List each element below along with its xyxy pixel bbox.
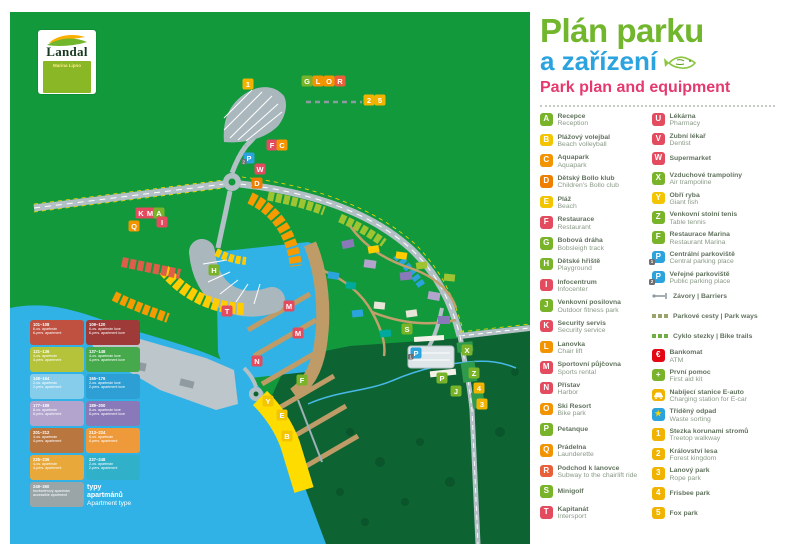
legend-badge-Q: Q xyxy=(540,444,553,457)
legend-item-text: PlážBeach xyxy=(558,196,577,211)
legend-label-en: Aquapark xyxy=(558,162,589,169)
map-marker-f: F xyxy=(297,375,308,386)
legend-item-text: Ski ResortBike park xyxy=(558,403,592,418)
legend-label-en: ATM xyxy=(670,357,703,364)
legend-item-u: ULékárnaPharmacy xyxy=(652,113,777,133)
legend-item-d: DDětský Bollo klubChildren's Bollo club xyxy=(540,175,652,196)
apartment-type-block: 249–260bezbariérový apartmánaccessible a… xyxy=(30,482,84,507)
map-marker-z: Z xyxy=(469,368,480,379)
legend-badge-T: T xyxy=(540,506,553,519)
legend-label-en: Pharmacy xyxy=(670,120,701,127)
legend-badge-C: C xyxy=(540,154,553,167)
map-marker-f: F xyxy=(267,140,278,151)
svg-text:I: I xyxy=(161,218,163,227)
legend-label-en: Restaurant Marina xyxy=(670,239,730,246)
legend-item-s: SMinigolf xyxy=(540,485,652,506)
legend-label-en: Rope park xyxy=(670,475,710,482)
legend-item-text: Dětský Bollo klubChildren's Bollo club xyxy=(558,175,619,190)
legend-label-cz: Závory | Barriers xyxy=(673,293,727,300)
parking-number-badge: 1 xyxy=(649,259,655,265)
svg-text:Y: Y xyxy=(265,397,270,406)
legend-item-star-icon: ★Tříděný odpadWaste sorting xyxy=(652,408,777,428)
legend-column-left: ARecepceReceptionBPlážový volejbalBeach … xyxy=(540,113,652,527)
map-marker-o: O xyxy=(324,76,335,87)
legend-item-text: LékárnaPharmacy xyxy=(670,113,701,128)
svg-text:P: P xyxy=(246,154,251,163)
map-marker-5: 5 xyxy=(375,95,386,106)
legend-label-cz: Nabíjecí stanice E-auto xyxy=(670,389,747,396)
legend-item-c: CAquaparkAquapark xyxy=(540,154,652,175)
legend-item-text: Petanque xyxy=(558,423,589,433)
map-marker-y: Y xyxy=(263,396,274,407)
legend-label-en: Bike park xyxy=(558,410,592,417)
legend-item-5: 5Fox park xyxy=(652,507,777,527)
svg-text:K: K xyxy=(138,209,144,218)
legend-label-cz: Restaurace xyxy=(558,216,595,223)
title-line2: a zařízení xyxy=(540,48,657,75)
title-line1: Plán parku xyxy=(540,14,777,48)
legend-item-q: QPrádelnaLaunderette xyxy=(540,444,652,465)
svg-text:B: B xyxy=(284,432,290,441)
legend-badge-G: G xyxy=(540,237,553,250)
legend-label-en: Infocenter xyxy=(558,286,597,293)
legend-label-en: Public parking place xyxy=(670,278,731,285)
legend-label-cz: Lanovka xyxy=(558,341,586,348)
legend-label-en: Beach volleyball xyxy=(558,141,611,148)
apartment-type-block: 237–2482-os. apartmán2-pers. apartment xyxy=(86,455,140,480)
legend-label-en: Waste sorting xyxy=(670,416,717,423)
legend-item-text: Bobová dráhaBobsleigh track xyxy=(558,237,604,252)
map-marker-n: N xyxy=(252,356,263,367)
apartment-type-block: 213–2246-os. apartmán6-pers. apartment xyxy=(86,428,140,453)
legend-label-en: Central parking place xyxy=(670,258,735,265)
legend-label-en: Reception xyxy=(558,120,589,127)
map-marker-p: P xyxy=(437,373,448,384)
svg-text:D: D xyxy=(254,179,260,188)
svg-text:5: 5 xyxy=(378,96,382,105)
legend-item-y: YObří rybaGiant fish xyxy=(652,192,777,212)
legend-item-plus-icon: +První pomocFirst aid kit xyxy=(652,369,777,389)
legend-item-text: Obří rybaGiant fish xyxy=(670,192,700,207)
legend-item-e: EPlážBeach xyxy=(540,196,652,217)
legend-item-text: InfocentrumInfocenter xyxy=(558,279,597,294)
legend-item-text: Zubní lékařDentist xyxy=(670,133,706,148)
legend-item-text: Podchod k lanovceSubway to the chairlift… xyxy=(558,465,638,480)
legend-item-text: Centrální parkovištěCentral parking plac… xyxy=(670,251,735,266)
svg-text:C: C xyxy=(279,141,285,150)
legend-badge-H: H xyxy=(540,258,553,271)
svg-text:L: L xyxy=(316,77,321,86)
legend-item-text: Veřejné parkovištěPublic parking place xyxy=(670,271,731,286)
park-plan-poster: 1GLOR25FCP2WDKMAIQHTMMNFYEBSP1PXZJ43 Lan… xyxy=(0,0,785,554)
svg-text:R: R xyxy=(337,77,343,86)
barrier-icon xyxy=(652,290,668,303)
map-marker-s: S xyxy=(402,324,413,335)
legend-badge-P: P2 xyxy=(652,271,665,284)
apartment-type-block: 137–1484-os. apartmán luxe4-pers. apartm… xyxy=(86,347,140,372)
apartment-type-block: 225–2364-os. apartmán4-pers. apartment xyxy=(30,455,84,480)
legend-item-text: Plážový volejbalBeach volleyball xyxy=(558,134,611,149)
legend-item-text: První pomocFirst aid kit xyxy=(670,369,711,384)
park-map: 1GLOR25FCP2WDKMAIQHTMMNFYEBSP1PXZJ43 Lan… xyxy=(10,12,530,544)
star-icon: ★ xyxy=(652,408,665,421)
legend-item-f: FRestauraceRestaurant xyxy=(540,216,652,237)
legend-label-en: Restaurant xyxy=(558,224,595,231)
map-marker-2: 2 xyxy=(364,95,375,106)
map-marker-r: R xyxy=(335,76,346,87)
legend-label-cz: Lékárna xyxy=(670,113,701,120)
legend-item-text: Venkovní posilovnaOutdoor fitness park xyxy=(558,299,621,314)
legend-item-text: Restaurace MarinaRestaurant Marina xyxy=(670,231,730,246)
legend-column-right: ULékárnaPharmacyVZubní lékařDentistWSupe… xyxy=(652,113,777,527)
svg-text:P: P xyxy=(439,374,444,383)
map-marker-l: L xyxy=(313,76,324,87)
legend-label-cz: Vzduchové trampolíny xyxy=(670,172,743,179)
legend-badge-D: D xyxy=(540,175,553,188)
svg-text:2: 2 xyxy=(367,96,371,105)
legend-label-cz: Supermarket xyxy=(670,155,712,162)
legend-item-g: GBobová dráhaBobsleigh track xyxy=(540,237,652,258)
map-marker-3: 3 xyxy=(477,399,488,410)
legend-panel: Plán parku a zařízení Park plan and equi… xyxy=(530,0,785,554)
apartment-type-block: 149–1642-os. apartmán2-pers. apartment xyxy=(30,374,84,399)
legend-item-ecar-icon: Nabíjecí stanice E-autoCharging station … xyxy=(652,389,777,409)
apartment-type-block: 177–1888-os. apartmán8-pers. apartment xyxy=(30,401,84,426)
legend-label-cz: Lanový park xyxy=(670,467,710,474)
legend-label-en: Security service xyxy=(558,327,606,334)
legend-item-text: Fox park xyxy=(670,507,698,517)
legend-badge-F: F xyxy=(540,216,553,229)
map-marker-d: D xyxy=(252,178,263,189)
svg-text:A: A xyxy=(156,209,162,218)
svg-text:E: E xyxy=(279,411,284,420)
svg-text:M: M xyxy=(286,302,292,311)
legend-badge-A: A xyxy=(540,113,553,126)
title-line3: Park plan and equipment xyxy=(540,78,777,98)
apartment-type-legend: 101–1086-os. apartmán6-pers. apartment10… xyxy=(30,320,142,507)
legend-label-cz: Recepce xyxy=(558,113,589,120)
legend-item-l: LLanovkaChair lift xyxy=(540,341,652,362)
map-marker-j: J xyxy=(451,386,462,397)
legend-item-text: RestauraceRestaurant xyxy=(558,216,595,231)
legend-label-cz: Fox park xyxy=(670,510,698,517)
legend-label-en: Air trampoline xyxy=(670,179,743,186)
svg-text:Z: Z xyxy=(472,369,477,378)
legend-badge-3: 3 xyxy=(652,467,665,480)
svg-text:O: O xyxy=(326,77,332,86)
legend-label-en: Sports rental xyxy=(558,369,621,376)
svg-text:F: F xyxy=(270,141,275,150)
legend-label-en: Giant fish xyxy=(670,199,700,206)
euro-icon: € xyxy=(652,349,665,362)
legend-badge-P: P1 xyxy=(652,251,665,264)
legend-label-cz: Obří ryba xyxy=(670,192,700,199)
legend-item-parkway-icon: Parkové cesty | Park ways xyxy=(652,310,777,330)
legend-label-en: Charging station for E-car xyxy=(670,396,747,403)
legend-badge-S: S xyxy=(540,485,553,498)
legend-item-w: WSupermarket xyxy=(652,152,777,172)
legend-item-z: ZVenkovní stolní tenisTable tennis xyxy=(652,211,777,231)
map-marker-c: C xyxy=(277,140,288,151)
legend-item-text: LanovkaChair lift xyxy=(558,341,586,356)
legend-item-text: Frisbee park xyxy=(670,487,710,497)
plus-icon: + xyxy=(652,369,665,382)
legend-label-cz: První pomoc xyxy=(670,369,711,376)
legend-badge-J: J xyxy=(540,299,553,312)
legend-label-cz: Restaurace Marina xyxy=(670,231,730,238)
legend-label-cz: Bankomat xyxy=(670,349,703,356)
legend-item-text: PřístavHarbor xyxy=(558,382,581,397)
legend-item-n: NPřístavHarbor xyxy=(540,382,652,403)
legend-label-en: Beach xyxy=(558,203,577,210)
legend-item-a: ARecepceReception xyxy=(540,113,652,134)
legend-item-r: RPodchod k lanovceSubway to the chairlif… xyxy=(540,465,652,486)
legend-label-cz: Dětský Bollo klub xyxy=(558,175,619,182)
svg-text:M: M xyxy=(147,209,153,218)
map-marker-q: Q xyxy=(129,221,140,232)
legend-label-cz: Plážový volejbal xyxy=(558,134,611,141)
legend-item-text: Dětské hřištěPlayground xyxy=(558,258,601,273)
legend-label-cz: Přístav xyxy=(558,382,581,389)
legend-label-cz: Bobová dráha xyxy=(558,237,604,244)
legend-item-b: BPlážový volejbalBeach volleyball xyxy=(540,134,652,155)
legend-item-text: Vzduchové trampolínyAir trampoline xyxy=(670,172,743,187)
legend-columns: ARecepceReceptionBPlážový volejbalBeach … xyxy=(540,113,777,527)
legend-badge-1: 1 xyxy=(652,428,665,441)
legend-label-cz: Dětské hřiště xyxy=(558,258,601,265)
legend-label-en: Chair lift xyxy=(558,348,586,355)
legend-item-text: Security servisSecurity service xyxy=(558,320,606,335)
legend-label-cz: Kapitanát xyxy=(558,506,589,513)
legend-badge-M: M xyxy=(540,361,553,374)
apartment-type-block: 165–1762-os. apartmán luxe2-pers. apartm… xyxy=(86,374,140,399)
legend-item-3: 3Lanový parkRope park xyxy=(652,467,777,487)
legend-label-cz: Aquapark xyxy=(558,154,589,161)
legend-item-v: VZubní lékařDentist xyxy=(652,133,777,153)
legend-item-2: 2Království lesaForest kingdom xyxy=(652,448,777,468)
legend-item-p: P2Veřejné parkovištěPublic parking place xyxy=(652,271,777,291)
legend-item-text: Lanový parkRope park xyxy=(670,467,710,482)
legend-label-cz: Cyklo stezky | Bike trails xyxy=(673,333,752,340)
legend-label-en: Table tennis xyxy=(670,219,738,226)
legend-item-f: FRestaurace MarinaRestaurant Marina xyxy=(652,231,777,251)
apartment-type-caption: typy apartmánůApartment type xyxy=(86,482,140,507)
legend-label-en: Treetop walkway xyxy=(670,435,749,442)
legend-item-m: MSportovní půjčovnaSports rental xyxy=(540,361,652,382)
legend-item-i: IInfocentrumInfocenter xyxy=(540,279,652,300)
legend-label-en: Forest kingdom xyxy=(670,455,718,462)
apartment-type-block: 109–1206-os. apartmán luxe6-pers. apartm… xyxy=(86,320,140,345)
fish-icon xyxy=(663,51,697,73)
apartment-type-block: 121–1364-os. apartmán4-pers. apartment xyxy=(30,347,84,372)
map-marker-m: M xyxy=(284,301,295,312)
legend-label-en: Playground xyxy=(558,265,601,272)
legend-item-euro-icon: €BankomatATM xyxy=(652,349,777,369)
logo-park-name: Marina Lipno xyxy=(43,61,91,93)
svg-text:H: H xyxy=(211,266,216,275)
svg-text:W: W xyxy=(256,165,264,174)
legend-item-o: OSki ResortBike park xyxy=(540,403,652,424)
apartment-type-block: 201–2124-os. apartmán4-pers. apartment xyxy=(30,428,84,453)
legend-label-cz: Veřejné parkoviště xyxy=(670,271,731,278)
logo-brand-text: Landal xyxy=(46,45,88,58)
legend-item-text: Venkovní stolní tenisTable tennis xyxy=(670,211,738,226)
map-marker-b: B xyxy=(282,431,293,442)
legend-label-en: First aid kit xyxy=(670,376,711,383)
map-marker-g: G xyxy=(302,76,313,87)
legend-badge-B: B xyxy=(540,134,553,147)
legend-label-en: Intersport xyxy=(558,513,589,520)
legend-badge-5: 5 xyxy=(652,507,665,520)
ecar-icon xyxy=(652,389,665,402)
legend-label-cz: Stezka korunami stromů xyxy=(670,428,749,435)
legend-label-en: Bobsleigh track xyxy=(558,245,604,252)
legend-badge-4: 4 xyxy=(652,487,665,500)
map-marker-i: I xyxy=(157,217,168,228)
legend-item-text: Nabíjecí stanice E-autoCharging station … xyxy=(670,389,747,404)
legend-item-text: RecepceReception xyxy=(558,113,589,128)
legend-item-text: BankomatATM xyxy=(670,349,703,364)
svg-text:1: 1 xyxy=(246,80,250,89)
legend-label-cz: Venkovní stolní tenis xyxy=(670,211,738,218)
legend-label-cz: Prádelna xyxy=(558,444,594,451)
legend-badge-L: L xyxy=(540,341,553,354)
roundabout-main xyxy=(223,173,241,191)
legend-label-cz: Podchod k lanovce xyxy=(558,465,638,472)
legend-label-cz: Infocentrum xyxy=(558,279,597,286)
legend-item-text: Závory | Barriers xyxy=(673,290,727,300)
legend-item-text: Sportovní půjčovnaSports rental xyxy=(558,361,621,376)
legend-badge-X: X xyxy=(652,172,665,185)
legend-item-j: JVenkovní posilovnaOutdoor fitness park xyxy=(540,299,652,320)
svg-text:M: M xyxy=(295,329,301,338)
legend-label-cz: Ski Resort xyxy=(558,403,592,410)
svg-text:F: F xyxy=(300,376,305,385)
legend-item-p: PPetanque xyxy=(540,423,652,444)
legend-badge-U: U xyxy=(652,113,665,126)
map-marker-t: T xyxy=(222,306,233,317)
svg-text:3: 3 xyxy=(480,400,484,409)
legend-label-cz: Království lesa xyxy=(670,448,718,455)
svg-text:G: G xyxy=(304,77,310,86)
legend-item-text: Stezka korunami stromůTreetop walkway xyxy=(670,428,749,443)
legend-label-cz: Zubní lékař xyxy=(670,133,706,140)
legend-item-1: 1Stezka korunami stromůTreetop walkway xyxy=(652,428,777,448)
apartment-type-block: 189–2008-os. apartmán luxe8-pers. apartm… xyxy=(86,401,140,426)
legend-label-cz: Pláž xyxy=(558,196,577,203)
parking-number-badge: 2 xyxy=(649,279,655,285)
legend-badge-W: W xyxy=(652,152,665,165)
legend-label-cz: Centrální parkoviště xyxy=(670,251,735,258)
legend-label-cz: Frisbee park xyxy=(670,490,710,497)
legend-badge-Y: Y xyxy=(652,192,665,205)
legend-item-text: Cyklo stezky | Bike trails xyxy=(673,330,752,340)
svg-text:P: P xyxy=(413,349,418,358)
biketrail-icon xyxy=(652,330,668,343)
legend-badge-Z: Z xyxy=(652,211,665,224)
map-marker-4: 4 xyxy=(474,383,485,394)
map-marker-w: W xyxy=(255,164,266,175)
legend-item-t: TKapitanátIntersport xyxy=(540,506,652,527)
legend-badge-R: R xyxy=(540,465,553,478)
legend-item-text: Supermarket xyxy=(670,152,712,162)
legend-item-text: Tříděný odpadWaste sorting xyxy=(670,408,717,423)
svg-text:X: X xyxy=(464,346,469,355)
legend-label-cz: Venkovní posilovna xyxy=(558,299,621,306)
legend-item-x: XVzduchové trampolínyAir trampoline xyxy=(652,172,777,192)
legend-item-barrier-icon: Závory | Barriers xyxy=(652,290,777,310)
legend-label-cz: Tříděný odpad xyxy=(670,408,717,415)
landal-logo: Landal Marina Lipno xyxy=(38,30,96,94)
legend-item-text: AquaparkAquapark xyxy=(558,154,589,169)
legend-badge-F: F xyxy=(652,231,665,244)
legend-item-p: P1Centrální parkovištěCentral parking pl… xyxy=(652,251,777,271)
legend-label-cz: Parkové cesty | Park ways xyxy=(673,313,758,320)
legend-badge-2: 2 xyxy=(652,448,665,461)
legend-badge-O: O xyxy=(540,403,553,416)
legend-label-en: Subway to the chairlift ride xyxy=(558,472,638,479)
svg-text:J: J xyxy=(454,387,458,396)
legend-item-4: 4Frisbee park xyxy=(652,487,777,507)
map-marker-1: 1 xyxy=(243,79,254,90)
map-marker-x: X xyxy=(462,345,473,356)
legend-label-cz: Sportovní půjčovna xyxy=(558,361,621,368)
legend-badge-P: P xyxy=(540,423,553,436)
legend-item-text: PrádelnaLaunderette xyxy=(558,444,594,459)
legend-badge-N: N xyxy=(540,382,553,395)
legend-badge-E: E xyxy=(540,196,553,209)
parkway-icon xyxy=(652,310,668,323)
title-line2-row: a zařízení xyxy=(540,48,777,75)
legend-item-h: HDětské hřištěPlayground xyxy=(540,258,652,279)
legend-label-cz: Minigolf xyxy=(558,488,584,495)
legend-label-cz: Security servis xyxy=(558,320,606,327)
legend-label-cz: Petanque xyxy=(558,426,589,433)
title-separator xyxy=(540,105,775,107)
legend-label-en: Outdoor fitness park xyxy=(558,307,621,314)
apartment-type-block: 101–1086-os. apartmán6-pers. apartment xyxy=(30,320,84,345)
map-marker-h: H xyxy=(209,265,220,276)
map-marker-e: E xyxy=(277,410,288,421)
svg-text:T: T xyxy=(225,307,230,316)
legend-badge-I: I xyxy=(540,279,553,292)
legend-badge-K: K xyxy=(540,320,553,333)
legend-item-k: KSecurity servisSecurity service xyxy=(540,320,652,341)
map-marker-m: M xyxy=(293,328,304,339)
legend-label-en: Harbor xyxy=(558,389,581,396)
legend-label-en: Launderette xyxy=(558,451,594,458)
svg-text:S: S xyxy=(404,325,409,334)
legend-item-text: KapitanátIntersport xyxy=(558,506,589,521)
legend-label-en: Children's Bollo club xyxy=(558,182,619,189)
legend-item-text: Parkové cesty | Park ways xyxy=(673,310,758,320)
legend-badge-V: V xyxy=(652,133,665,146)
legend-label-en: Dentist xyxy=(670,140,706,147)
legend-item-text: Království lesaForest kingdom xyxy=(670,448,718,463)
legend-item-text: Minigolf xyxy=(558,485,584,495)
svg-text:Q: Q xyxy=(131,222,137,231)
legend-item-biketrail-icon: Cyklo stezky | Bike trails xyxy=(652,330,777,350)
svg-text:N: N xyxy=(254,357,259,366)
